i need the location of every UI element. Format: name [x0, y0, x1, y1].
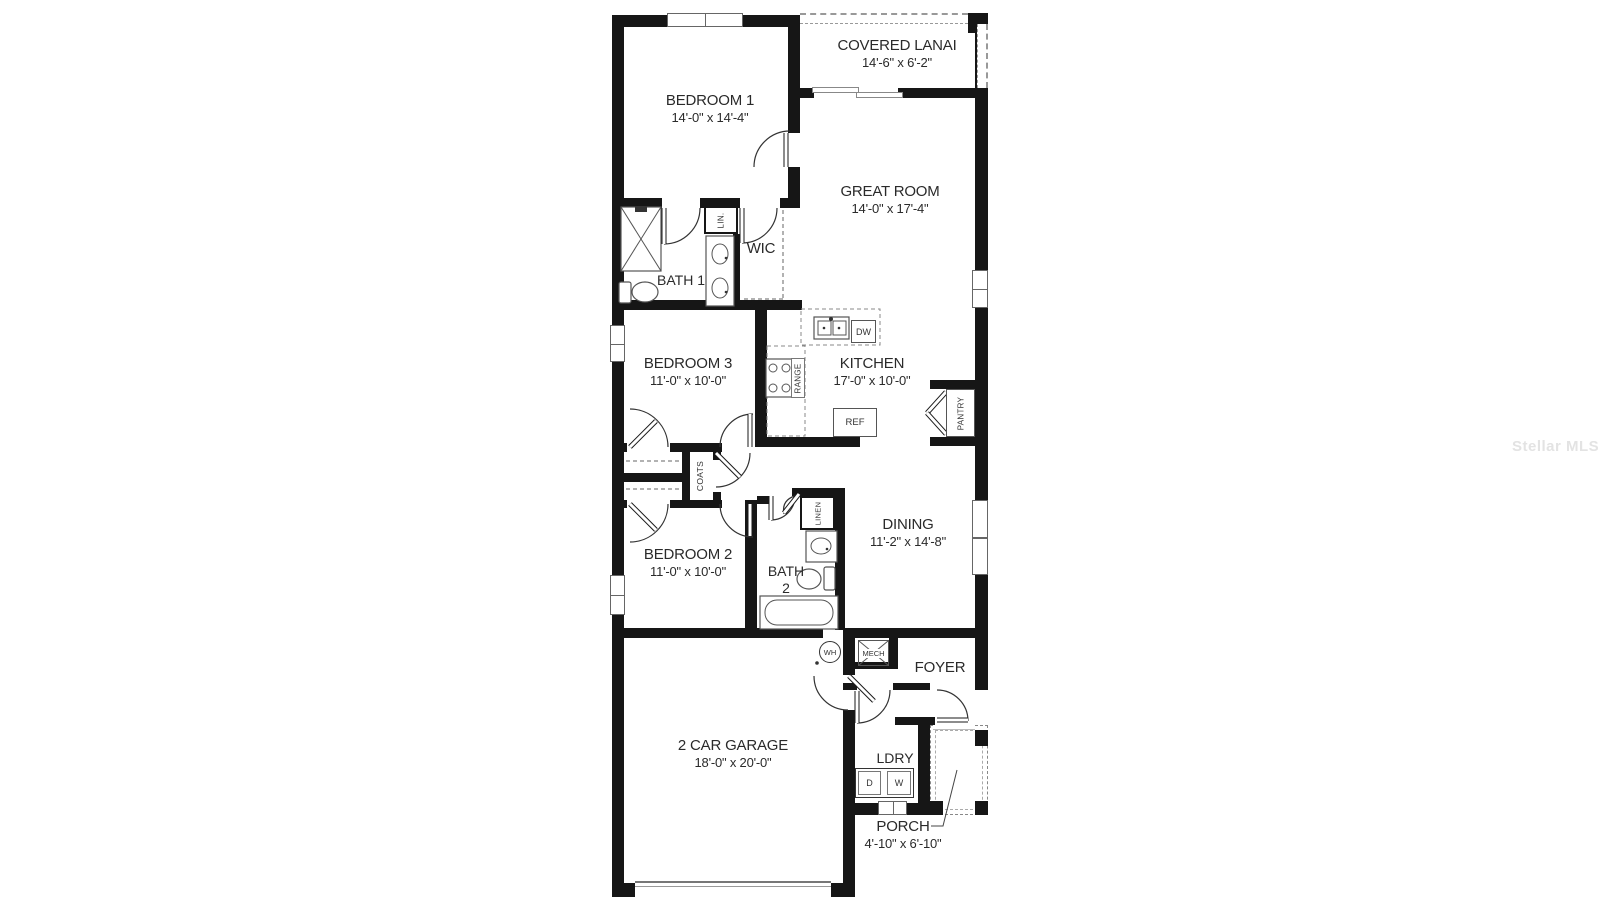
pantry-label: PANTRY [946, 389, 975, 437]
room-label-porch: PORCH 4'-10" x 6'-10" [865, 818, 942, 851]
dishwasher-box: DW [851, 320, 876, 343]
bathtub-icon [760, 596, 838, 629]
door-arc-bath1 [664, 208, 700, 244]
lanai-dashed-edge [800, 13, 968, 24]
room-dims: 14'-6" x 6'-2" [837, 55, 956, 70]
wall [755, 437, 860, 447]
room-label-bedroom2: BEDROOM 2 11'-0" x 10'-0" [644, 546, 732, 579]
wall [757, 496, 771, 504]
wall [975, 575, 988, 690]
wall [843, 803, 878, 815]
wall [898, 88, 975, 98]
door-arc-bath2 [771, 496, 795, 520]
wall [612, 15, 624, 325]
shower-icon [621, 206, 661, 271]
range-label: RANGE [791, 358, 805, 398]
floor-drain-dot [815, 661, 819, 665]
room-dims: 14'-0" x 14'-4" [666, 110, 754, 125]
room-label-garage: 2 CAR GARAGE 18'-0" x 20'-0" [678, 737, 788, 770]
room-label-dining: DINING 11'-2" x 14'-8" [870, 516, 946, 549]
room-name: KITCHEN [834, 355, 911, 373]
sliding-door-panel [856, 92, 903, 98]
door-arc-bedroom3-closet [630, 409, 668, 447]
room-name: BEDROOM 2 [644, 546, 732, 564]
window-dining [972, 500, 988, 575]
wall [612, 15, 667, 27]
lin-closet-label: LIN. [704, 206, 738, 234]
door-arc-coats [716, 453, 750, 487]
coats-closet-label: COATS [688, 452, 713, 500]
door-arc-wic [742, 208, 777, 243]
door-arc-bedroom3 [720, 414, 753, 447]
doors-and-fixtures-layer [0, 0, 1600, 899]
room-dims: 17'-0" x 10'-0" [834, 373, 911, 388]
window-laundry [878, 801, 907, 815]
room-name: BEDROOM 1 [666, 92, 754, 110]
wall [907, 803, 930, 815]
porch-corner [975, 730, 988, 746]
window-bedroom1 [667, 13, 743, 27]
wall [930, 437, 975, 446]
room-dims: 11'-0" x 10'-0" [644, 373, 732, 388]
wall [670, 443, 722, 452]
dryer-box: D [858, 771, 881, 795]
kitchen-sink-icon [814, 317, 849, 339]
wall [755, 310, 767, 443]
wall [745, 508, 757, 630]
room-label-wic: WIC [747, 240, 776, 258]
room-name: COVERED LANAI [837, 37, 956, 55]
wall [975, 308, 988, 500]
room-dims: 14'-0" x 17'-4" [840, 201, 939, 216]
room-label-covered-lanai: COVERED LANAI 14'-6" x 6'-2" [837, 37, 956, 70]
room-label-bedroom3: BEDROOM 3 11'-0" x 10'-0" [644, 355, 732, 388]
linen-closet-label: LINEN [800, 496, 835, 530]
room-dims: 18'-0" x 20'-0" [678, 755, 788, 770]
wall [612, 883, 635, 897]
room-label-bath1: BATH 1 [657, 272, 705, 289]
wall [713, 452, 721, 460]
room-label-bath2: BATH 2 [768, 563, 804, 596]
wall [843, 638, 855, 675]
room-dims: 11'-2" x 14'-8" [870, 534, 946, 549]
sliding-door-panel [812, 87, 859, 93]
wall [835, 488, 845, 630]
room-name: DINING [870, 516, 946, 534]
wall [918, 725, 930, 803]
wall [612, 500, 627, 508]
floor-plan-page: { "watermark": "Stellar MLS", "rooms": {… [0, 0, 1600, 899]
room-label-ldry: LDRY [876, 750, 913, 767]
door-arc-bedroom2-closet [630, 504, 668, 542]
wall [612, 443, 627, 452]
wall [743, 15, 800, 27]
room-dims: 4'-10" x 6'-10" [865, 836, 942, 851]
wall [895, 717, 935, 725]
wall [831, 883, 855, 897]
wall [612, 300, 802, 310]
mech-label: MECH [858, 640, 889, 666]
room-name: BATH [768, 563, 804, 580]
door-arc-linen [784, 495, 798, 514]
wall [780, 198, 800, 208]
porch-corner [930, 801, 943, 815]
wall [612, 615, 624, 897]
room-name: BEDROOM 3 [644, 355, 732, 373]
room-label-kitchen: KITCHEN 17'-0" x 10'-0" [834, 355, 911, 388]
room-dims: 11'-0" x 10'-0" [644, 564, 732, 579]
window-bedroom2 [610, 575, 625, 615]
wall [624, 473, 684, 482]
porch-corner [975, 801, 988, 815]
door-arc-front [937, 690, 968, 721]
front-door-threshold [933, 725, 975, 730]
garage-door [635, 881, 831, 887]
door-arc-bedroom1 [754, 131, 790, 167]
wall [733, 234, 740, 306]
room-name: 2 CAR GARAGE [678, 737, 788, 755]
door-arc-garage-entry [814, 676, 848, 710]
wall [893, 683, 930, 690]
bath1-vanity-icon [706, 236, 734, 306]
room-label-bedroom1: BEDROOM 1 14'-0" x 14'-4" [666, 92, 754, 125]
wall [745, 500, 757, 508]
bath2-vanity-icon [806, 531, 837, 562]
wall [670, 500, 722, 508]
door-arc-laundry [857, 690, 890, 723]
wall [843, 683, 857, 690]
room-label-foyer: FOYER [915, 659, 966, 677]
wall [843, 628, 975, 638]
wall [930, 380, 975, 389]
room-label-great-room: GREAT ROOM 14'-0" x 17'-4" [840, 183, 939, 216]
range-burners-icon [766, 359, 793, 397]
water-heater-icon: WH [819, 641, 841, 663]
wall [612, 628, 823, 638]
washer-box: W [887, 771, 911, 795]
wall [612, 362, 624, 575]
window-great-room [972, 270, 988, 308]
lanai-dashed-edge [977, 24, 988, 88]
window-bedroom3 [610, 325, 625, 362]
wall [612, 198, 662, 208]
wall [788, 27, 800, 133]
refrigerator-box: REF [833, 408, 877, 437]
room-name: GREAT ROOM [840, 183, 939, 201]
room-name: PORCH [865, 818, 942, 836]
room-name: 2 [768, 580, 804, 597]
watermark: Stellar MLS [1512, 438, 1599, 455]
